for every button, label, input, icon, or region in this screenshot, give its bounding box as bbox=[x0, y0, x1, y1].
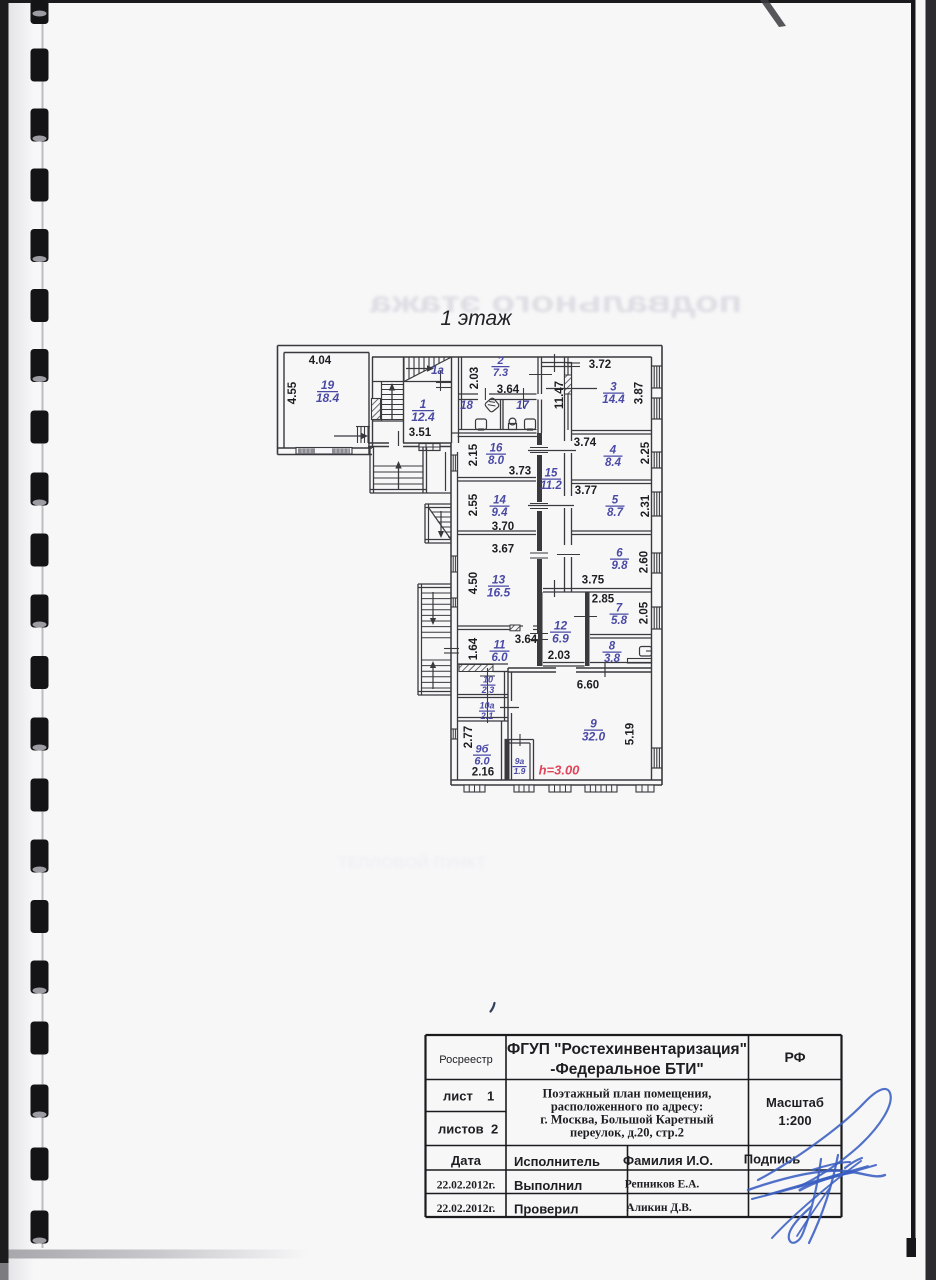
svg-text:листов: листов bbox=[438, 1122, 484, 1137]
svg-text:1: 1 bbox=[420, 397, 427, 411]
svg-text:подвального этажа: подвального этажа bbox=[370, 286, 742, 319]
svg-text:9.4: 9.4 bbox=[492, 507, 509, 519]
svg-text:6.0: 6.0 bbox=[492, 652, 509, 664]
svg-text:2: 2 bbox=[496, 355, 503, 367]
svg-text:17: 17 bbox=[516, 400, 529, 412]
svg-text:2.85: 2.85 bbox=[592, 594, 615, 606]
svg-text:переулок, д.20, стр.2: переулок, д.20, стр.2 bbox=[570, 1126, 684, 1140]
svg-text:Масштаб: Масштаб bbox=[766, 1095, 824, 1110]
svg-text:Репников Е.А.: Репников Е.А. bbox=[625, 1179, 700, 1191]
svg-text:2.55: 2.55 bbox=[468, 493, 480, 516]
svg-text:3.8: 3.8 bbox=[604, 653, 621, 665]
svg-text:3.77: 3.77 bbox=[575, 485, 597, 497]
svg-text:расположенного по адресу:: расположенного по адресу: bbox=[551, 1100, 703, 1114]
svg-text:лист: лист bbox=[443, 1089, 473, 1104]
svg-text:Исполнитель: Исполнитель bbox=[514, 1154, 600, 1169]
svg-text:3.64: 3.64 bbox=[515, 634, 538, 646]
svg-text:22.02.2012г.: 22.02.2012г. bbox=[437, 1203, 496, 1215]
svg-text:РФ: РФ bbox=[784, 1049, 805, 1065]
svg-text:3.64: 3.64 bbox=[497, 384, 520, 396]
svg-text:4.50: 4.50 bbox=[468, 572, 480, 594]
svg-text:11: 11 bbox=[494, 640, 506, 652]
svg-text:22.02.2012г.: 22.02.2012г. bbox=[437, 1180, 496, 1192]
svg-text:7.3: 7.3 bbox=[493, 367, 508, 379]
svg-text:9.8: 9.8 bbox=[612, 560, 629, 572]
svg-text:2.03: 2.03 bbox=[469, 367, 481, 389]
svg-text:Аликин Д.В.: Аликин Д.В. bbox=[626, 1202, 692, 1214]
svg-text:3.72: 3.72 bbox=[589, 359, 611, 371]
svg-text:19: 19 bbox=[321, 378, 335, 392]
svg-text:Проверил: Проверил bbox=[514, 1202, 578, 1217]
svg-text:7: 7 bbox=[616, 603, 623, 615]
svg-text:2.3: 2.3 bbox=[481, 685, 495, 695]
svg-text:14.4: 14.4 bbox=[602, 394, 625, 406]
svg-text:6.0: 6.0 bbox=[474, 756, 490, 768]
svg-text:3.74: 3.74 bbox=[574, 437, 597, 449]
svg-text:8.4: 8.4 bbox=[605, 457, 622, 469]
svg-text:2.31: 2.31 bbox=[640, 494, 652, 517]
svg-text:2.16: 2.16 bbox=[472, 767, 494, 779]
svg-text:Росреестр: Росреестр bbox=[439, 1054, 492, 1066]
svg-text:Фамилия И.О.: Фамилия И.О. bbox=[623, 1153, 713, 1168]
svg-text:1:200: 1:200 bbox=[778, 1113, 811, 1128]
svg-text:4.04: 4.04 bbox=[309, 355, 332, 367]
svg-text:12.4: 12.4 bbox=[411, 410, 435, 424]
svg-text:Выполнил: Выполнил bbox=[514, 1178, 582, 1193]
svg-text:2.1: 2.1 bbox=[480, 711, 494, 721]
svg-text:10а: 10а bbox=[479, 701, 494, 711]
svg-text:4: 4 bbox=[609, 445, 617, 457]
svg-text:-Федеральное БТИ": -Федеральное БТИ" bbox=[550, 1061, 703, 1078]
svg-text:Дата: Дата bbox=[451, 1153, 482, 1168]
svg-text:ТЕПЛОВОЙ ПУНКТ: ТЕПЛОВОЙ ПУНКТ bbox=[338, 853, 486, 872]
svg-text:18.4: 18.4 bbox=[316, 391, 340, 405]
svg-text:9: 9 bbox=[590, 717, 597, 731]
svg-text:8: 8 bbox=[609, 641, 616, 653]
svg-text:16: 16 bbox=[490, 443, 503, 455]
svg-text:16.5: 16.5 bbox=[487, 585, 511, 599]
svg-text:15: 15 bbox=[545, 468, 558, 480]
svg-text:г. Москва, Большой Каретный: г. Москва, Большой Каретный bbox=[540, 1113, 713, 1127]
svg-text:8.7: 8.7 bbox=[607, 507, 624, 519]
svg-text:2.60: 2.60 bbox=[639, 551, 651, 573]
svg-text:3.67: 3.67 bbox=[492, 544, 514, 556]
svg-text:4.55: 4.55 bbox=[287, 381, 299, 404]
svg-text:2.05: 2.05 bbox=[639, 601, 651, 624]
svg-text:6: 6 bbox=[616, 548, 623, 560]
svg-text:Поэтажный план помещения,: Поэтажный план помещения, bbox=[543, 1087, 712, 1101]
svg-text:11.47: 11.47 bbox=[554, 381, 566, 409]
svg-text:18: 18 bbox=[460, 400, 473, 412]
svg-text:2.77: 2.77 bbox=[463, 726, 475, 748]
svg-text:2.15: 2.15 bbox=[468, 443, 480, 466]
svg-text:9б: 9б bbox=[476, 744, 490, 756]
svg-text:6.60: 6.60 bbox=[577, 680, 599, 692]
svg-text:3.73: 3.73 bbox=[509, 466, 531, 478]
svg-text:6.9: 6.9 bbox=[552, 631, 569, 645]
svg-text:1 этаж: 1 этаж bbox=[440, 307, 513, 330]
svg-text:3.70: 3.70 bbox=[492, 521, 514, 533]
svg-text:1.9: 1.9 bbox=[514, 766, 526, 776]
svg-text:32.0: 32.0 bbox=[582, 729, 606, 743]
svg-text:ФГУП "Ростехинвентаризация": ФГУП "Ростехинвентаризация" bbox=[507, 1041, 747, 1058]
svg-text:1а: 1а bbox=[431, 365, 444, 377]
svg-text:2.03: 2.03 bbox=[548, 650, 570, 662]
svg-text:3: 3 bbox=[610, 382, 617, 394]
svg-text:5.19: 5.19 bbox=[625, 723, 637, 745]
svg-text:5: 5 bbox=[612, 495, 619, 507]
svg-text:3.75: 3.75 bbox=[582, 575, 605, 587]
svg-text:h=3.00: h=3.00 bbox=[539, 763, 581, 778]
svg-text:3.87: 3.87 bbox=[634, 382, 646, 404]
svg-text:2: 2 bbox=[491, 1122, 498, 1137]
svg-text:13: 13 bbox=[492, 573, 506, 587]
svg-text:12: 12 bbox=[554, 619, 568, 633]
svg-text:11.2: 11.2 bbox=[540, 480, 562, 492]
svg-text:9а: 9а bbox=[515, 756, 525, 766]
svg-text:3.51: 3.51 bbox=[409, 427, 432, 439]
svg-text:10: 10 bbox=[483, 675, 493, 685]
svg-text:8.0: 8.0 bbox=[488, 455, 505, 467]
svg-text:1: 1 bbox=[487, 1089, 494, 1104]
svg-text:1.64: 1.64 bbox=[468, 637, 480, 660]
svg-text:2.25: 2.25 bbox=[640, 441, 652, 464]
svg-text:5.8: 5.8 bbox=[611, 615, 628, 627]
svg-text:14: 14 bbox=[493, 495, 506, 507]
